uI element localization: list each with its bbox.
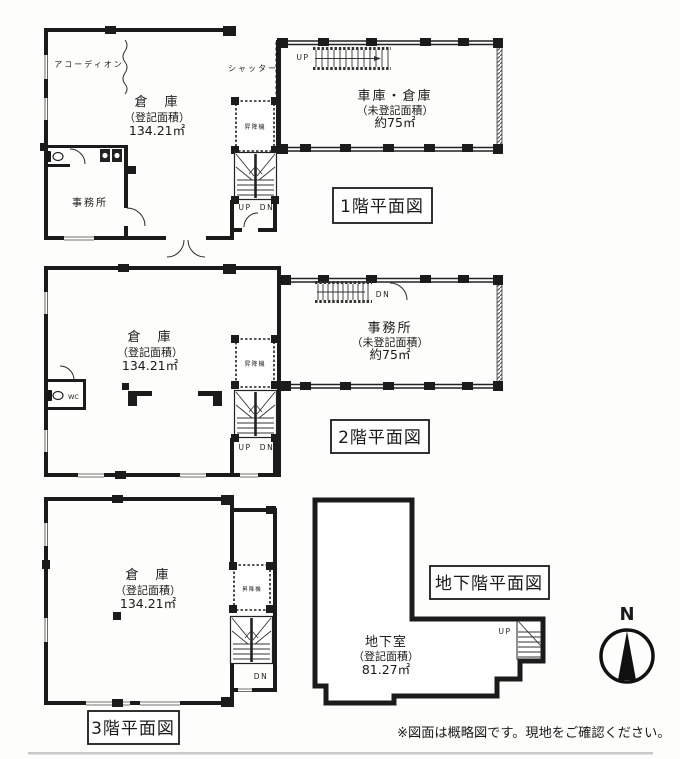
office-right-wall — [497, 277, 502, 390]
pillar — [223, 26, 236, 36]
floor3-warehouse-name: 倉 庫 — [125, 568, 170, 583]
pillar — [105, 26, 116, 34]
floor1-garage-name: 車庫・倉庫 — [357, 89, 432, 104]
floor2-title-box: 2階平面図 — [331, 420, 429, 453]
pillar — [118, 264, 129, 272]
basement-title: 地下階平面図 — [435, 574, 543, 594]
pillar — [122, 383, 129, 390]
floor2-warehouse-area: 134.21㎡ — [122, 358, 179, 373]
floor2-window-bottom-2 — [180, 472, 206, 478]
floor1-staircase — [235, 153, 277, 200]
floor1-window-bottom — [64, 235, 94, 241]
floor1-stair-up-label: UP — [238, 203, 251, 212]
floor2-ladder-dn-label: DN — [376, 290, 390, 299]
compass-north-label: N — [619, 604, 634, 625]
floor3-core: 昇降機 DN — [229, 562, 274, 681]
floor3-window-left-1 — [43, 523, 49, 546]
pillar — [115, 471, 126, 479]
floor1-garage-area: 約75㎡ — [375, 115, 416, 130]
floor2-warehouse-note: （登記面積） — [117, 345, 183, 359]
floor3-window-left-2 — [43, 618, 49, 642]
floor3-warehouse-area: 134.21㎡ — [120, 596, 177, 611]
floor2-warehouse-name: 倉 庫 — [127, 330, 172, 345]
disclaimer-text: ※図面は概略図です。現地をご確認ください。 — [397, 725, 670, 741]
floor3-warehouse-note: （登記面積） — [115, 583, 181, 597]
scan-line — [28, 752, 653, 755]
floor2-core-door — [240, 472, 258, 478]
floor1-elevator-label: 昇降機 — [244, 123, 265, 131]
pillar — [42, 560, 50, 569]
toilet-icon — [47, 390, 63, 401]
floor2-stair-up-label: UP — [238, 443, 251, 452]
pillar — [112, 699, 123, 707]
floor1-warehouse-name: 倉 庫 — [134, 95, 179, 110]
floor2-office-area: 約75㎡ — [370, 347, 411, 362]
floor1-accordion-label: アコーディオン — [54, 59, 123, 69]
pillar — [223, 264, 236, 274]
floor2-window-left-1 — [43, 292, 49, 314]
floor2-wc-label: WC — [68, 393, 79, 401]
basement-stair-up-label: UP — [498, 627, 511, 636]
pillar — [112, 495, 123, 503]
floor2-elevator-label: 昇降機 — [244, 360, 265, 368]
floor1-stair-dn-label: DN — [260, 203, 274, 212]
floor3-staircase — [231, 617, 273, 664]
pillar — [128, 166, 136, 174]
floor3-window-bottom-1 — [86, 700, 130, 706]
floor1-warehouse-area: 134.21㎡ — [129, 123, 186, 138]
pillar — [113, 612, 121, 620]
garage-shutter-wall — [497, 40, 502, 152]
basement-room-area: 81.27㎡ — [362, 662, 411, 677]
floor1-window-left-2 — [43, 98, 49, 120]
floor3-title: 3階平面図 — [91, 719, 175, 739]
pillar — [221, 697, 234, 707]
floor3-stair-dn-label: DN — [254, 672, 268, 681]
floor1-title-box: 1階平面図 — [333, 188, 432, 223]
floor2-stair-dn-label: DN — [260, 443, 274, 452]
basement-title-box: 地下階平面図 — [430, 566, 549, 599]
floor1-warehouse-note: （登記面積） — [124, 110, 190, 124]
floor2-window-left-2 — [43, 430, 49, 452]
floor1-ladder-up-label: UP — [296, 53, 309, 62]
floor3-ext-door — [238, 688, 252, 692]
floor1-title: 1階平面図 — [340, 197, 424, 217]
floor2-title: 2階平面図 — [338, 428, 422, 448]
floor1-office-label: 事務所 — [72, 196, 108, 209]
floor1-window-left-1 — [43, 55, 49, 79]
floor1-shutter-label: シャッター — [228, 64, 278, 73]
floor3-title-box: 3階平面図 — [88, 711, 179, 744]
floor3-elevator-label: 昇降機 — [242, 585, 262, 593]
basement-room-note: （登記面積） — [353, 649, 419, 663]
floor3-window-bottom-2 — [140, 700, 180, 706]
floor2-window-bottom-1 — [78, 472, 104, 478]
pillar — [221, 495, 234, 505]
floor2-office-name: 事務所 — [367, 321, 412, 336]
basement-room-name: 地下室 — [365, 634, 407, 650]
pillar — [266, 506, 276, 514]
floorplan-sheet: 事務所 アコーディオン 倉 庫 （登記面積） 134.21㎡ シャッター 昇降機… — [0, 0, 680, 759]
floor2-staircase — [235, 391, 277, 438]
